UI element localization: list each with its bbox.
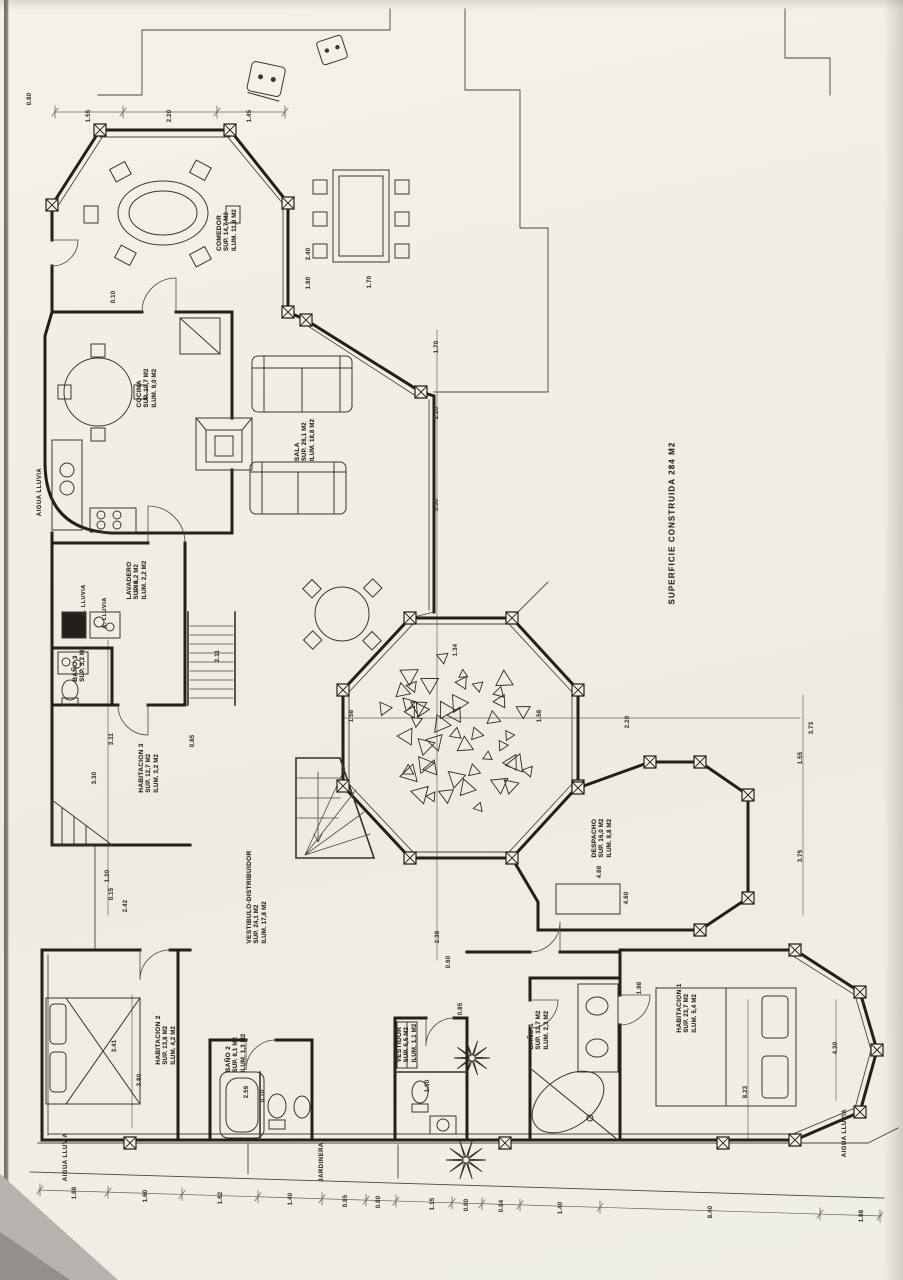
dimension-label: 1.58	[349, 710, 355, 722]
dimension-label: 0.15	[109, 888, 115, 900]
dimension-label: 5.50	[434, 499, 440, 511]
room-label: BAÑO 2 SUP. 6,1 M2 ILUM. 1,3 M2	[225, 1034, 249, 1073]
dimension-label: 0.85	[190, 735, 196, 747]
room-ilum: ILUM. 9,0 M2	[152, 369, 160, 408]
room-label: HABITACION 1 SUP. 23,7 M2 ILUM. 5,4 M2	[676, 983, 700, 1032]
dimension-label: 2.40	[306, 248, 312, 260]
scan-edge-left	[4, 0, 9, 1280]
dimension-label: 1.15	[430, 1198, 436, 1210]
annotation-label: A. LLUVIA	[81, 584, 87, 615]
room-label: BAÑO 1 SUP. 12,7 M2 ILUM. 2,3 M2	[528, 1011, 552, 1050]
room-ilum: ILUM. 2,2 M2	[142, 561, 150, 600]
room-sup: SUP. 3,2 M2	[80, 646, 88, 681]
room-ilum: ILUM. 2,3 M2	[544, 1011, 552, 1050]
total-area-note: SUPERFICIE CONSTRUIDA 284 M2	[668, 442, 677, 605]
dimension-label: 8.40	[708, 1206, 714, 1218]
scan-shadow-right	[883, 0, 903, 1280]
room-label: DESPACHO SUP. 16,0 M2 ILUM. 8,8 M2	[591, 819, 615, 858]
dimension-label: 4.30	[833, 1042, 839, 1054]
room-label: VESTIDOR SUP. 5,5 M2 ILUM. 1,1 M2	[396, 1024, 420, 1063]
scan-shadow-top	[0, 0, 903, 10]
dimension-label: 1.88	[859, 1210, 865, 1222]
dimension-label: 4.60	[624, 892, 630, 904]
dimension-label: 1.45	[247, 110, 253, 122]
room-label: VESTIBULO-DISTRIBUIDOR SUP. 24,1 M2 ILUM…	[246, 851, 270, 944]
dimension-label: 0.10	[260, 1090, 266, 1102]
room-label: SALA SUP. 26,1 M2 ILUM. 18,8 M2	[294, 419, 318, 461]
dimension-label: 3.41	[112, 1040, 118, 1052]
dimension-label: 0.60	[446, 956, 452, 968]
room-label: COMEDOR SUP. 14,7 M2 ILUM. 11,8 M2	[216, 209, 240, 251]
dimension-label: 2.20	[167, 110, 173, 122]
dimension-label: 1.30	[425, 1080, 431, 1092]
label-layer: SUPERFICIE CONSTRUIDA 284 M2 COMEDOR SUP…	[0, 0, 903, 1280]
room-ilum: ILUM. 18,8 M2	[310, 419, 318, 461]
room-ilum: ILUM. 17,8 M2	[262, 851, 270, 944]
dimension-label: 1.20	[105, 870, 111, 882]
dimension-label: 1.80	[306, 277, 312, 289]
annotation-label: AIGUA LLUVIA	[37, 468, 43, 516]
dimension-label: 2.59	[244, 1086, 250, 1098]
room-label: COCINA SUP. 10,7 M2 ILUM. 9,0 M2	[136, 369, 160, 408]
dimension-label: 1.40	[288, 1193, 294, 1205]
room-label: HABITACION 2 SUP. 13,8 M2 ILUM. 4,2 M2	[155, 1015, 179, 1064]
dimension-label: 3.75	[798, 850, 804, 862]
dimension-label: 4.88	[597, 866, 603, 878]
dimension-label: 1.40	[134, 581, 140, 593]
dimension-label: 0.10	[111, 291, 117, 303]
dimension-label: 1.98	[637, 982, 643, 994]
floor-plan-sheet: SUPERFICIE CONSTRUIDA 284 M2 COMEDOR SUP…	[0, 0, 903, 1280]
room-ilum: ILUM. 3,2 M2	[154, 743, 162, 792]
dimension-label: 1.70	[367, 276, 373, 288]
dimension-label: 2.38	[435, 931, 441, 943]
dimension-label: 0.80	[27, 93, 33, 105]
room-label: BAÑO 3 SUP. 3,2 M2	[72, 646, 88, 681]
room-ilum: ILUM. 1,3 M2	[241, 1034, 249, 1073]
room-ilum: ILUM. 1,1 M2	[412, 1024, 420, 1063]
dimension-label: 3.11	[109, 733, 115, 745]
room-ilum: ILUM. 8,8 M2	[607, 819, 615, 858]
room-ilum: ILUM. 4,2 M2	[171, 1015, 179, 1064]
dimension-label: 3.30	[92, 772, 98, 784]
dimension-label: 1.60	[143, 1190, 149, 1202]
dimension-label: 2.20	[434, 407, 440, 419]
dimension-label: 1.70	[434, 341, 440, 353]
dimension-label: 8.23	[743, 1086, 749, 1098]
dimension-label: 1.88	[72, 1187, 78, 1199]
annotation-label: A. LLUVIA	[102, 597, 108, 628]
room-ilum: ILUM. 5,4 M2	[692, 983, 700, 1032]
dimension-label: 1.55	[86, 110, 92, 122]
annotation-label: AIGUA LLUVIA	[842, 1109, 848, 1157]
dimension-label: 0.80	[376, 1196, 382, 1208]
dimension-label: 1.62	[218, 1192, 224, 1204]
dimension-label: 2.11	[215, 650, 221, 662]
annotation-label: AIGUA LLUVIA	[63, 1133, 69, 1181]
room-ilum: ILUM. 11,8 M2	[232, 209, 240, 251]
dimension-label: 1.58	[537, 710, 543, 722]
dimension-label: 2.42	[123, 900, 129, 912]
dimension-label: 0.85	[343, 1195, 349, 1207]
annotation-label: JARDINERA	[319, 1142, 325, 1182]
dimension-label: 2.20	[625, 716, 631, 728]
dimension-label: 0.80	[464, 1199, 470, 1211]
dimension-label: 1.34	[453, 644, 459, 656]
room-label: HABITACION 3 SUP. 12,7 M2 ILUM. 3,2 M2	[138, 743, 162, 792]
dimension-label: 1.55	[798, 752, 804, 764]
dimension-label: 1.40	[558, 1202, 564, 1214]
dimension-label: 0.85	[458, 1003, 464, 1015]
dimension-label: 0.94	[499, 1200, 505, 1212]
dimension-label: 3.73	[809, 722, 815, 734]
dimension-label: 3.80	[137, 1074, 143, 1086]
